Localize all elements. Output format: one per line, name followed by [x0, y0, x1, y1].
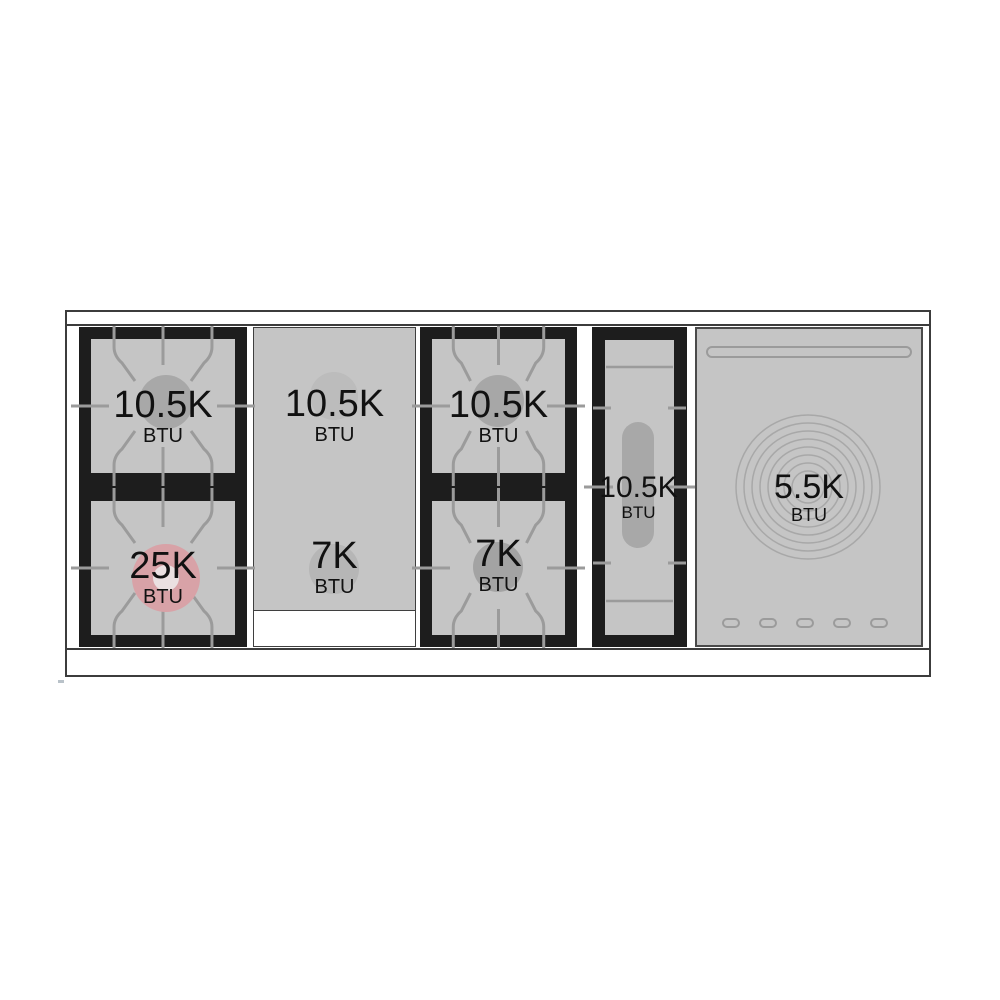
btu-unit: BTU: [79, 585, 247, 609]
btu-value: 10.5K: [79, 386, 247, 424]
btu-value: 10.5K: [577, 473, 700, 503]
griddle-plate: [253, 327, 416, 647]
btu-value: 10.5K: [253, 385, 416, 423]
burner-label-french-top: 5.5K BTU: [695, 470, 923, 526]
center-burner-block: [420, 327, 577, 647]
btu-unit: BTU: [79, 424, 247, 448]
btu-unit: BTU: [253, 575, 416, 599]
grease-tray: [254, 610, 415, 646]
btu-value: 10.5K: [420, 386, 577, 424]
btu-value: 7K: [253, 537, 416, 575]
btu-unit: BTU: [253, 423, 416, 447]
cooktop-diagram: 10.5K BTU 25K BTU 10.5K BTU 7K BTU 10.5K…: [0, 0, 1000, 1000]
btu-unit: BTU: [420, 573, 577, 597]
btu-unit: BTU: [695, 504, 923, 526]
screen-artifact: [58, 680, 64, 683]
burner-label-fry-top: 10.5K BTU: [577, 473, 700, 523]
btu-value: 7K: [420, 535, 577, 573]
burner-label-left-front: 25K BTU: [79, 547, 247, 609]
burner-label-griddle-rear: 10.5K BTU: [253, 385, 416, 447]
burner-label-center-front: 7K BTU: [420, 535, 577, 597]
btu-unit: BTU: [420, 424, 577, 448]
btu-unit: BTU: [577, 503, 700, 523]
btu-value: 5.5K: [695, 470, 923, 504]
burner-label-griddle-front: 7K BTU: [253, 537, 416, 599]
front-trim: [67, 648, 929, 675]
burner-label-left-rear: 10.5K BTU: [79, 386, 247, 448]
back-trim: [67, 312, 929, 326]
btu-value: 25K: [79, 547, 247, 585]
burner-label-center-rear: 10.5K BTU: [420, 386, 577, 448]
